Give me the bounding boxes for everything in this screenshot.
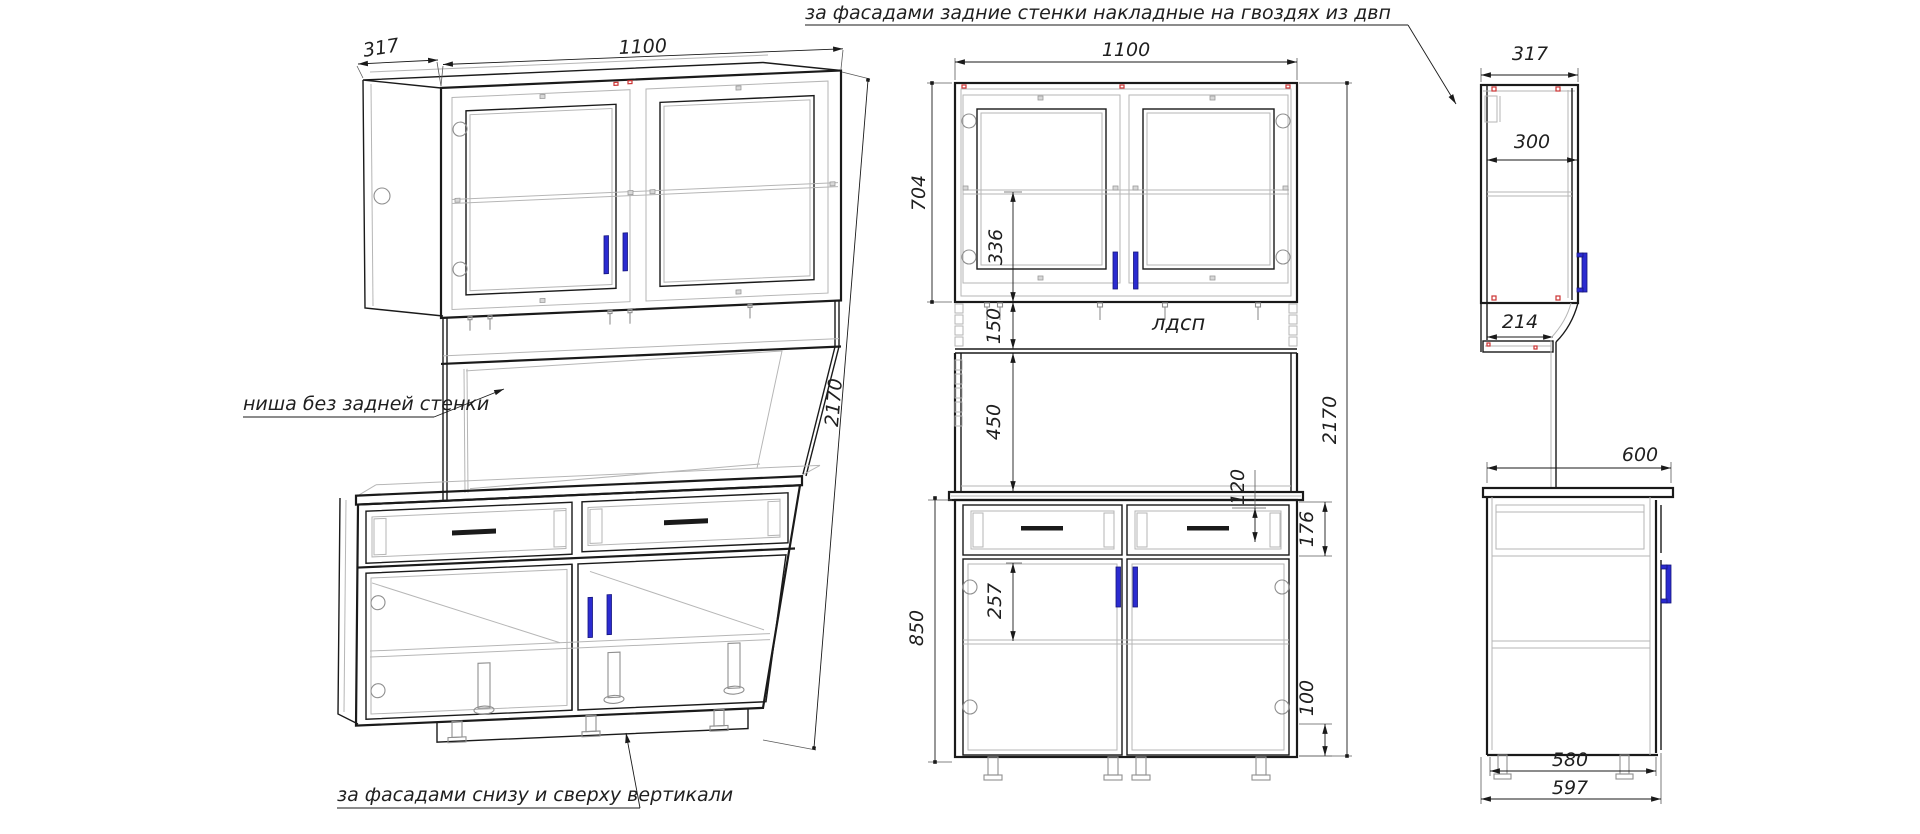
drawer-handle <box>1187 526 1229 531</box>
dim-side-total-depth: 597 <box>1552 777 1588 799</box>
door-handle <box>1133 567 1138 607</box>
dim-front-total-height: 2170 <box>1319 396 1341 444</box>
door-handle <box>623 233 628 271</box>
drawer-handle <box>664 518 708 525</box>
dim-iso-width: 1100 <box>618 35 667 59</box>
fastener-mark <box>1487 343 1490 346</box>
drawer-handle <box>1021 526 1063 531</box>
door-handle-side <box>1582 253 1587 292</box>
back-edge-segments <box>955 304 1297 346</box>
door-handle <box>1134 252 1139 289</box>
dim-side-shelf-depth: 214 <box>1502 311 1538 333</box>
bolts-under-cabinet <box>985 303 1261 320</box>
dim-front-upper-height: 704 <box>908 175 930 211</box>
door-handle <box>607 595 612 635</box>
dim-front-lower-height: 850 <box>906 610 928 646</box>
fastener-mark <box>614 82 618 85</box>
dim-front-drawer-inner: 120 <box>1227 469 1249 505</box>
dim-iso-height: 2170 <box>821 377 847 427</box>
note-niche: ниша без задней стенки <box>243 393 489 415</box>
dim-front-gap: 150 <box>983 308 1005 344</box>
dim-front-width: 1100 <box>1102 39 1150 61</box>
dim-front-drawer-front: 176 <box>1296 511 1318 547</box>
door-handle <box>1113 252 1118 289</box>
door-handle <box>1116 567 1121 607</box>
dim-iso-depth: 317 <box>361 34 400 61</box>
fastener-mark <box>1492 296 1496 300</box>
dim-side-depth: 317 <box>1512 43 1548 65</box>
fastener-mark <box>1120 85 1124 88</box>
fastener-mark <box>1556 87 1560 91</box>
door-handle-side <box>1666 565 1671 603</box>
front-legs <box>984 757 1270 780</box>
front-view: лдсп <box>906 39 1352 780</box>
fastener-mark <box>1534 346 1537 349</box>
fastener-mark <box>628 81 632 84</box>
fastener-mark <box>962 85 966 88</box>
note-back-walls: за фасадами задние стенки накладные на г… <box>805 2 1391 24</box>
fastener-mark <box>1286 85 1290 88</box>
material-label: лдсп <box>1151 311 1205 335</box>
door-handle <box>604 236 609 274</box>
dim-front-shelf-offset: 336 <box>985 229 1007 265</box>
note-verticals: за фасадами снизу и сверху вертикали <box>337 784 733 806</box>
dim-front-door-offset: 257 <box>984 583 1006 619</box>
door-handle <box>588 597 593 637</box>
drawing-canvas: 317 1100 2170 <box>0 0 1920 834</box>
fastener-mark <box>1556 296 1560 300</box>
cabinet-technical-drawing: 317 1100 2170 <box>0 0 1920 834</box>
dim-front-niche-height: 450 <box>983 404 1005 440</box>
drawer-handle <box>452 529 496 536</box>
fastener-mark <box>1492 87 1496 91</box>
dim-side-body-depth: 580 <box>1552 749 1588 771</box>
dim-side-inner-depth: 300 <box>1514 131 1550 153</box>
dim-side-worktop-depth: 600 <box>1622 444 1658 466</box>
side-view: 317 300 214 600 <box>1481 43 1673 804</box>
adjustable-legs-inside <box>474 643 744 715</box>
dim-front-plinth: 100 <box>1296 680 1318 716</box>
